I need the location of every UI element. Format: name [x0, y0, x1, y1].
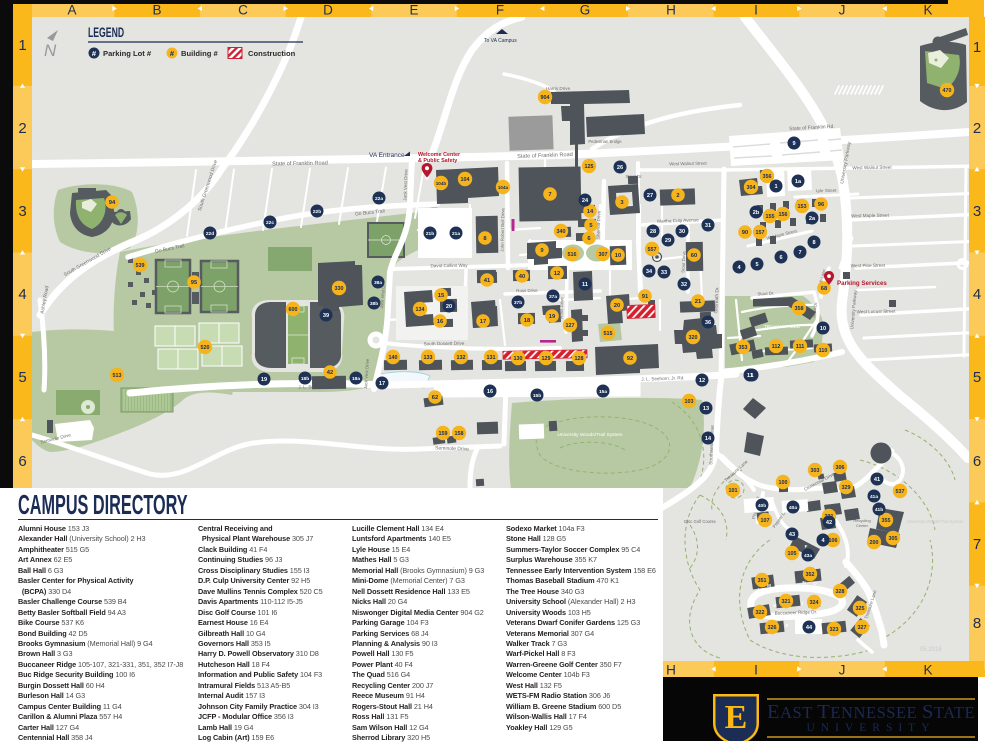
svg-text:321: 321: [782, 599, 791, 605]
svg-text:LEGEND: LEGEND: [88, 25, 124, 41]
svg-text:K: K: [923, 3, 932, 18]
svg-text:27: 27: [647, 193, 653, 199]
svg-text:92: 92: [627, 356, 633, 362]
svg-text:9: 9: [792, 141, 795, 147]
svg-text:West Maple Street: West Maple Street: [851, 213, 890, 219]
svg-text:133: 133: [424, 355, 433, 361]
svg-text:18a: 18a: [352, 376, 360, 382]
svg-text:358: 358: [795, 306, 804, 312]
svg-text:101: 101: [729, 488, 738, 494]
svg-text:22d: 22d: [206, 231, 214, 237]
svg-text:State of Franklin Road: State of Franklin Road: [272, 161, 328, 168]
svg-text:537: 537: [896, 489, 905, 495]
svg-text:21: 21: [695, 299, 702, 305]
svg-text:40: 40: [519, 274, 525, 280]
svg-text:515: 515: [604, 331, 613, 337]
svg-text:303: 303: [811, 468, 820, 474]
svg-text:15: 15: [438, 293, 445, 299]
svg-text:131: 131: [487, 355, 496, 361]
svg-text:10: 10: [615, 253, 621, 259]
svg-text:34: 34: [646, 269, 653, 275]
svg-text:3: 3: [18, 203, 26, 220]
svg-text:6: 6: [973, 453, 981, 470]
svg-text:104: 104: [461, 177, 470, 183]
svg-text:4: 4: [973, 286, 981, 303]
svg-text:539: 539: [136, 263, 145, 269]
svg-text:F: F: [496, 3, 504, 18]
svg-text:F: F: [805, 544, 808, 549]
svg-text:2: 2: [676, 193, 679, 199]
svg-text:340: 340: [557, 229, 566, 235]
svg-text:G: G: [580, 3, 591, 18]
svg-text:21b: 21b: [426, 231, 434, 237]
svg-text:30: 30: [679, 229, 685, 235]
svg-text:21a: 21a: [452, 231, 460, 237]
svg-text:96: 96: [818, 202, 825, 208]
svg-text:6: 6: [18, 453, 26, 470]
svg-text:13: 13: [703, 406, 709, 412]
svg-text:24: 24: [582, 198, 589, 204]
svg-text:17: 17: [480, 319, 486, 325]
svg-text:513: 513: [113, 373, 122, 379]
svg-text:600: 600: [289, 307, 298, 313]
svg-text:22b: 22b: [313, 209, 321, 215]
svg-text:200: 200: [870, 540, 879, 546]
svg-text:104b: 104b: [436, 181, 447, 186]
svg-text:15b: 15b: [533, 393, 541, 399]
svg-text:32: 32: [681, 282, 687, 288]
svg-text:7: 7: [548, 192, 551, 198]
svg-text:2: 2: [18, 120, 26, 137]
svg-text:106: 106: [829, 538, 838, 544]
svg-text:A: A: [67, 3, 76, 18]
svg-text:N: N: [802, 580, 805, 585]
svg-text:4: 4: [18, 286, 26, 303]
svg-text:353: 353: [739, 345, 748, 351]
svg-text:155: 155: [766, 214, 775, 220]
svg-text:J: J: [839, 663, 846, 678]
svg-text:16: 16: [437, 319, 444, 325]
svg-text:E: E: [409, 3, 418, 18]
svg-text:2: 2: [973, 120, 981, 137]
svg-text:356: 356: [763, 174, 772, 180]
svg-text:140: 140: [389, 355, 398, 361]
svg-text:159: 159: [439, 431, 448, 437]
svg-text:1: 1: [750, 373, 753, 379]
svg-text:To VA Campus: To VA Campus: [484, 38, 517, 44]
svg-text:60: 60: [691, 253, 697, 259]
svg-text:22a: 22a: [375, 196, 383, 202]
svg-text:Stout Dr.: Stout Dr.: [757, 291, 774, 297]
svg-text:100: 100: [779, 480, 788, 486]
svg-text:19: 19: [261, 377, 267, 383]
svg-text:Center: Center: [856, 523, 869, 528]
svg-text:1: 1: [774, 184, 777, 190]
svg-text:EAST TENNESSEE STATE: EAST TENNESSEE STATE: [767, 701, 975, 723]
svg-text:H: H: [666, 3, 676, 18]
svg-text:West Walnut Street: West Walnut Street: [669, 161, 707, 167]
svg-text:306: 306: [836, 465, 845, 471]
svg-text:West Pine Street: West Pine Street: [851, 263, 886, 269]
svg-text:Building #: Building #: [181, 49, 218, 58]
svg-text:8: 8: [973, 615, 981, 632]
svg-text:134: 134: [416, 307, 425, 313]
svg-text:Seminole Drive: Seminole Drive: [435, 445, 469, 452]
svg-text:7: 7: [973, 536, 981, 553]
svg-text:470: 470: [943, 88, 952, 94]
svg-text:39: 39: [323, 313, 329, 319]
svg-text:& Public Safety: & Public Safety: [418, 158, 457, 164]
svg-text:156: 156: [779, 212, 788, 218]
svg-text:22c: 22c: [266, 220, 274, 226]
svg-text:329: 329: [842, 485, 851, 491]
svg-text:132: 132: [457, 355, 466, 361]
svg-text:West Locust Street: West Locust Street: [857, 309, 897, 315]
svg-text:19: 19: [549, 314, 556, 320]
svg-text:B: B: [152, 3, 161, 18]
svg-text:520: 520: [201, 345, 210, 351]
svg-text:127: 127: [566, 323, 575, 329]
svg-text:17: 17: [379, 381, 385, 387]
svg-text:TRI-HALL FIELD: TRI-HALL FIELD: [764, 324, 801, 330]
svg-text:323: 323: [830, 627, 839, 633]
svg-text:UNIVERSITY: UNIVERSITY: [807, 722, 936, 734]
svg-text:John Robert Bell Drive: John Robert Bell Drive: [500, 207, 506, 252]
svg-text:128: 128: [575, 356, 584, 362]
svg-text:153: 153: [798, 204, 807, 210]
svg-text:41: 41: [874, 477, 880, 483]
svg-text:37b: 37b: [514, 300, 522, 306]
svg-text:14: 14: [705, 436, 712, 442]
svg-text:41: 41: [484, 278, 491, 284]
svg-text:David Collins Way: David Collins Way: [430, 263, 468, 269]
svg-text:40a: 40a: [789, 505, 797, 511]
svg-text:130: 130: [514, 356, 523, 362]
svg-text:28: 28: [650, 229, 656, 235]
svg-text:31: 31: [705, 223, 711, 229]
svg-text:L: L: [758, 587, 761, 592]
svg-text:29: 29: [665, 238, 671, 244]
svg-text:K: K: [923, 663, 932, 678]
svg-text:1: 1: [973, 39, 981, 56]
svg-text:18b: 18b: [301, 376, 309, 382]
svg-text:12: 12: [699, 378, 705, 384]
svg-text:112: 112: [772, 344, 781, 350]
svg-text:Ross Drive: Ross Drive: [516, 288, 538, 293]
svg-text:40b: 40b: [758, 503, 766, 509]
svg-text:18: 18: [524, 318, 531, 324]
svg-text:38b: 38b: [370, 301, 378, 307]
svg-text:90: 90: [742, 230, 748, 236]
svg-text:3: 3: [973, 203, 981, 220]
svg-text:33: 33: [661, 270, 667, 276]
svg-text:8: 8: [812, 240, 815, 246]
svg-text:H: H: [666, 663, 676, 678]
svg-text:355: 355: [882, 518, 891, 524]
svg-text:304: 304: [747, 185, 756, 191]
svg-text:328: 328: [836, 589, 845, 595]
svg-text:330: 330: [335, 286, 344, 292]
svg-text:05.2018: 05.2018: [920, 647, 942, 653]
svg-text:University Woods/Trail System: University Woods/Trail System: [907, 519, 964, 524]
svg-text:516: 516: [568, 252, 577, 258]
svg-text:103: 103: [685, 399, 694, 405]
svg-text:43: 43: [789, 532, 795, 538]
svg-text:16: 16: [487, 389, 493, 395]
svg-text:11: 11: [582, 282, 588, 288]
svg-text:6: 6: [779, 255, 782, 261]
svg-text:557: 557: [648, 247, 657, 253]
svg-text:110: 110: [819, 348, 828, 354]
svg-text:111: 111: [796, 344, 804, 350]
svg-text:Construction: Construction: [248, 49, 296, 58]
svg-text:2b: 2b: [753, 210, 760, 216]
svg-text:26: 26: [617, 165, 623, 171]
svg-text:20: 20: [614, 303, 620, 309]
svg-text:322: 322: [756, 610, 765, 616]
svg-text:5: 5: [973, 369, 981, 386]
svg-text:University Woods/Trail System: University Woods/Trail System: [557, 432, 622, 438]
svg-text:44: 44: [806, 625, 813, 631]
svg-text:14: 14: [587, 209, 594, 215]
svg-text:1: 1: [18, 37, 26, 54]
svg-text:326: 326: [768, 625, 777, 631]
svg-text:327: 327: [858, 625, 867, 631]
svg-text:125: 125: [585, 164, 594, 170]
svg-text:2a: 2a: [809, 216, 816, 222]
svg-text:20: 20: [446, 304, 452, 310]
svg-text:904: 904: [541, 95, 550, 101]
svg-text:351: 351: [758, 578, 767, 584]
svg-text:I: I: [754, 663, 758, 678]
svg-text:104a: 104a: [498, 185, 509, 190]
svg-text:324: 324: [810, 600, 819, 606]
svg-text:307: 307: [599, 252, 608, 258]
svg-text:E: E: [725, 699, 748, 736]
svg-text:320: 320: [689, 335, 698, 341]
svg-text:36: 36: [705, 320, 711, 326]
svg-text:42: 42: [826, 520, 832, 526]
svg-text:C: C: [238, 3, 248, 18]
svg-text:D: D: [323, 3, 333, 18]
svg-text:15a: 15a: [599, 389, 607, 395]
svg-text:37a: 37a: [549, 294, 557, 300]
svg-text:10: 10: [820, 326, 826, 332]
svg-text:43a: 43a: [804, 553, 812, 559]
svg-text:91: 91: [642, 294, 649, 300]
svg-text:41b: 41b: [875, 507, 883, 513]
svg-text:42: 42: [327, 370, 333, 376]
svg-text:105: 105: [788, 551, 797, 557]
svg-text:West Walnut Street: West Walnut Street: [852, 165, 892, 171]
svg-text:Disc Golf Course: Disc Golf Course: [684, 519, 716, 524]
svg-text:O: O: [813, 581, 817, 586]
svg-text:I: I: [754, 3, 758, 18]
svg-text:Parking Lot #: Parking Lot #: [103, 49, 152, 58]
svg-text:1a: 1a: [795, 179, 802, 185]
svg-text:62: 62: [432, 395, 438, 401]
svg-text:Parking Services: Parking Services: [837, 280, 887, 287]
svg-text:12: 12: [554, 271, 560, 277]
svg-text:95: 95: [191, 280, 198, 286]
svg-text:41a: 41a: [870, 494, 878, 500]
svg-text:157: 157: [756, 230, 765, 236]
svg-text:5: 5: [755, 262, 758, 268]
svg-text:94: 94: [109, 200, 116, 206]
svg-text:H: H: [773, 603, 776, 608]
svg-text:Harris Drive: Harris Drive: [546, 86, 571, 91]
svg-text:7: 7: [798, 250, 801, 256]
svg-text:Pedestrian Bridge: Pedestrian Bridge: [588, 139, 622, 144]
svg-text:E: E: [785, 623, 788, 628]
svg-text:South Dossett Drive: South Dossett Drive: [424, 341, 465, 347]
svg-text:68: 68: [821, 286, 828, 292]
svg-text:38a: 38a: [374, 280, 382, 286]
svg-text:129: 129: [542, 356, 551, 362]
svg-text:158: 158: [455, 431, 464, 437]
svg-text:J: J: [839, 3, 846, 18]
svg-text:5: 5: [18, 369, 26, 386]
svg-text:N: N: [44, 41, 57, 60]
svg-text:352: 352: [806, 572, 815, 578]
svg-text:Lyle Street: Lyle Street: [816, 188, 838, 193]
svg-text:VA Entrance: VA Entrance: [369, 152, 405, 159]
svg-text:305: 305: [889, 536, 898, 542]
svg-text:107: 107: [761, 518, 770, 524]
svg-text:325: 325: [856, 606, 865, 612]
